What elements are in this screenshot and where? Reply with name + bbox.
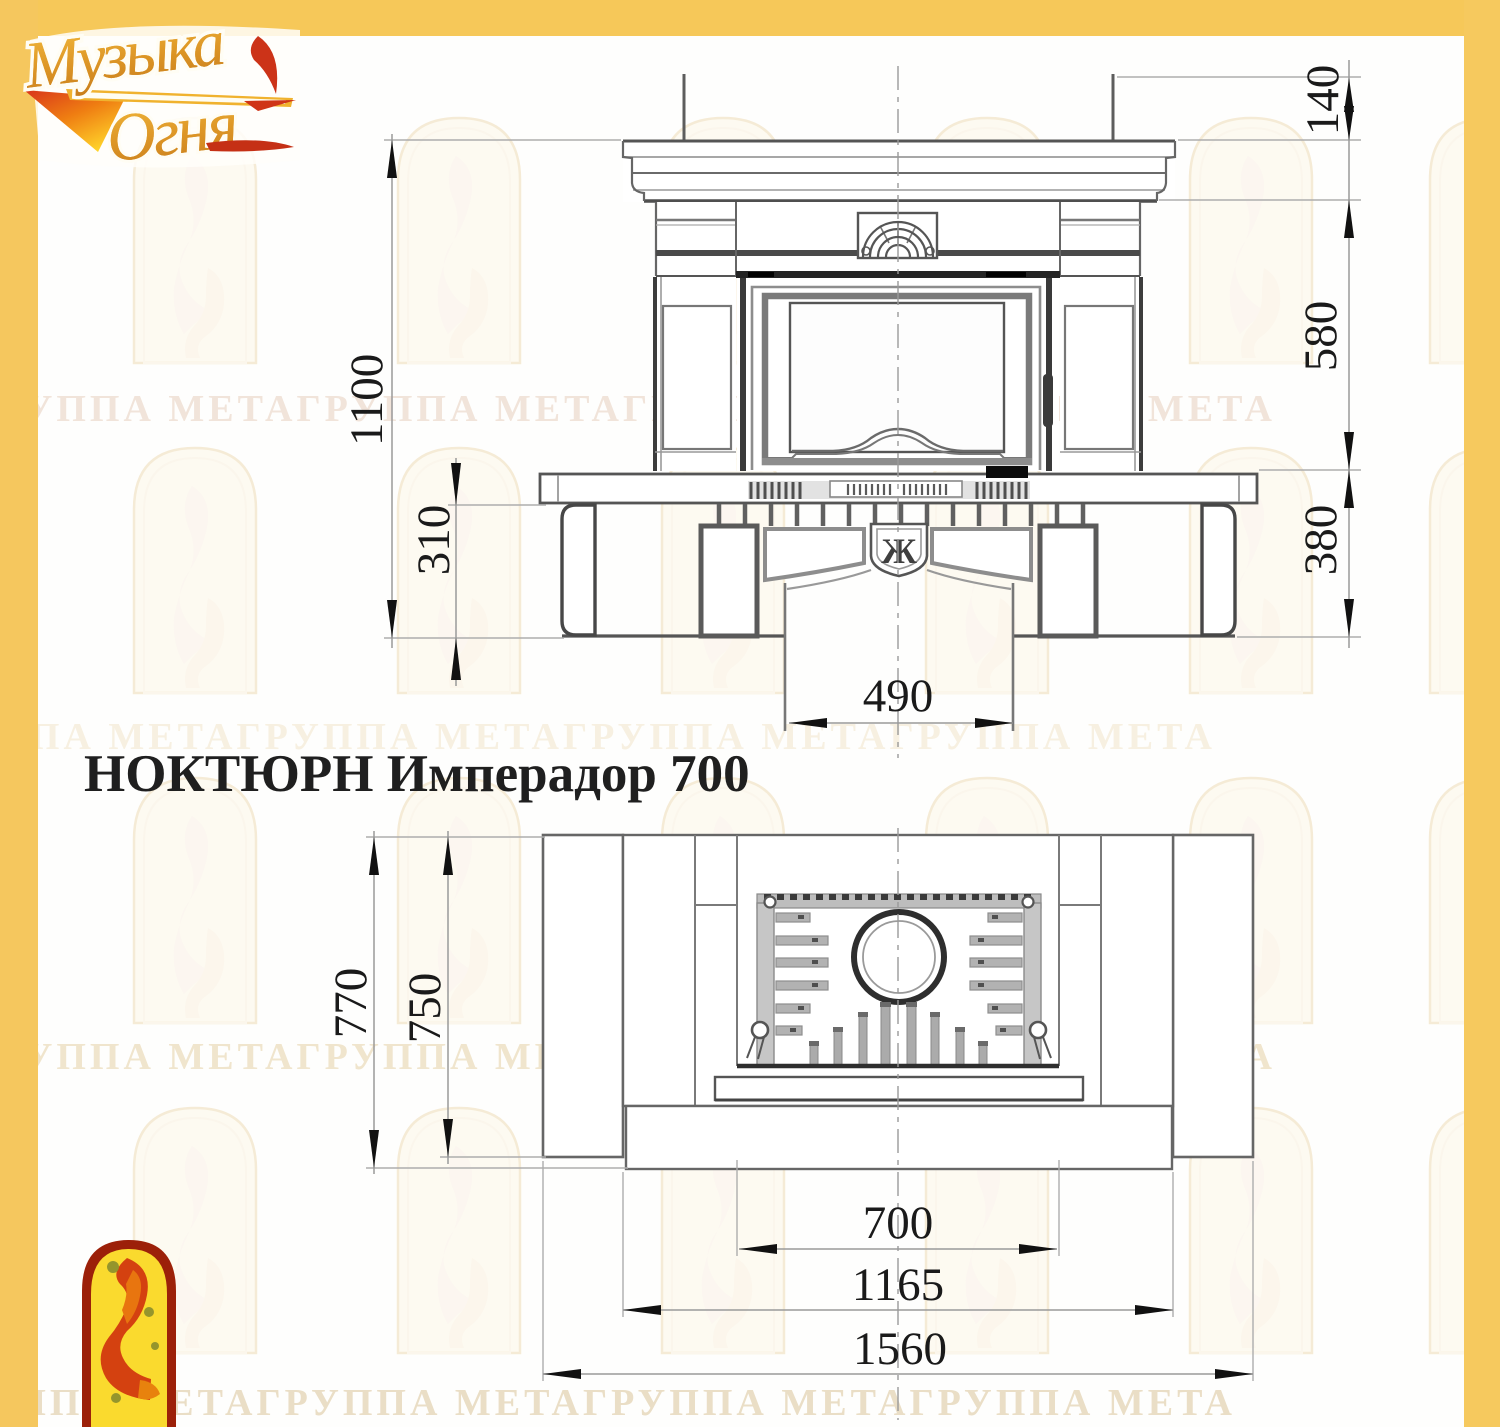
svg-text:140: 140: [1297, 65, 1349, 136]
svg-text:Огня: Огня: [102, 85, 240, 176]
svg-text:1100: 1100: [341, 354, 393, 446]
svg-text:580: 580: [1295, 301, 1347, 372]
svg-text:490: 490: [863, 670, 934, 722]
svg-text:НОКТЮРН Имперадор 700: НОКТЮРН Имперадор 700: [84, 745, 750, 803]
svg-text:380: 380: [1295, 505, 1347, 576]
svg-text:310: 310: [408, 505, 460, 576]
svg-text:770: 770: [325, 968, 377, 1039]
svg-text:Ж: Ж: [881, 531, 917, 571]
svg-text:ГРУППА МЕТАГРУППА МЕТАГРУППА М: ГРУППА МЕТАГРУППА МЕТАГРУППА МЕТАГРУППА …: [0, 1382, 1236, 1424]
svg-text:700: 700: [863, 1197, 934, 1249]
svg-text:1560: 1560: [853, 1323, 947, 1375]
svg-text:1165: 1165: [852, 1259, 944, 1311]
svg-text:750: 750: [399, 973, 451, 1044]
